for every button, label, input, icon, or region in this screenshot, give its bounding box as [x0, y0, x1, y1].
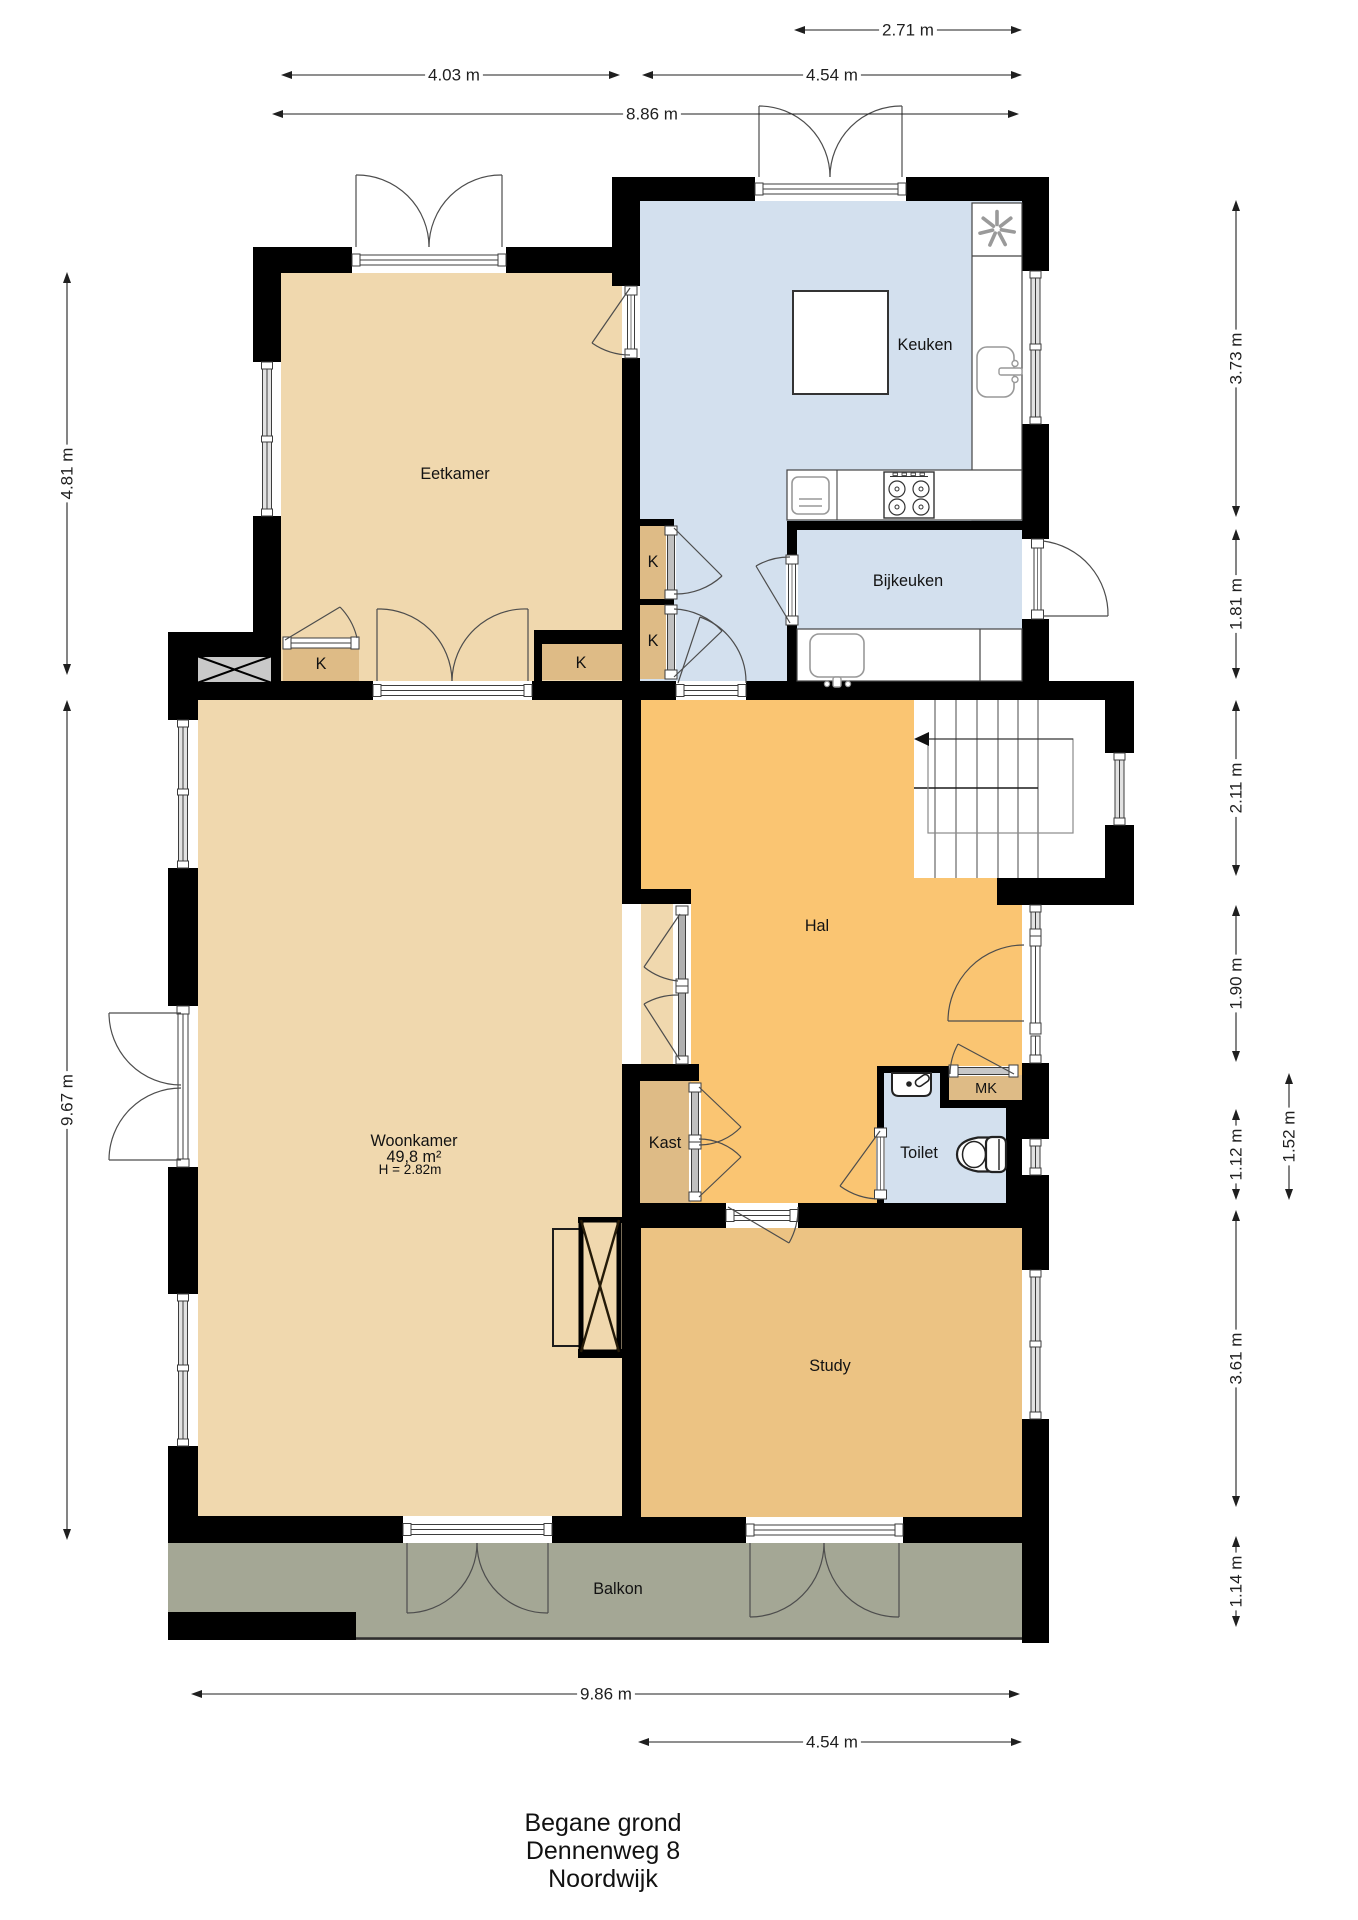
svg-text:4.54 m: 4.54 m [806, 1733, 858, 1752]
svg-text:Study: Study [809, 1357, 851, 1375]
svg-text:Noordwijk: Noordwijk [548, 1865, 658, 1893]
svg-text:MK: MK [975, 1081, 997, 1097]
svg-text:K: K [316, 655, 327, 673]
svg-text:Hal: Hal [805, 917, 829, 935]
svg-text:4.03 m: 4.03 m [428, 66, 480, 85]
svg-text:K: K [648, 553, 659, 571]
svg-text:Bijkeuken: Bijkeuken [873, 572, 943, 590]
svg-text:2.71 m: 2.71 m [882, 21, 934, 40]
svg-text:9.86 m: 9.86 m [580, 1685, 632, 1704]
svg-text:Toilet: Toilet [900, 1144, 938, 1162]
svg-text:8.86 m: 8.86 m [626, 105, 678, 124]
svg-text:1.90 m: 1.90 m [1227, 958, 1246, 1010]
svg-text:K: K [648, 632, 659, 650]
svg-text:1.81 m: 1.81 m [1227, 578, 1246, 630]
svg-text:Kast: Kast [649, 1134, 682, 1152]
svg-text:Begane grond: Begane grond [524, 1809, 681, 1837]
svg-text:1.14 m: 1.14 m [1227, 1556, 1246, 1608]
svg-text:Keuken: Keuken [898, 336, 953, 354]
svg-text:3.73 m: 3.73 m [1227, 333, 1246, 385]
svg-text:K: K [576, 654, 587, 672]
svg-text:Eetkamer: Eetkamer [420, 465, 490, 483]
svg-text:3.61 m: 3.61 m [1227, 1333, 1246, 1385]
svg-text:H = 2.82m: H = 2.82m [379, 1162, 442, 1177]
svg-text:Balkon: Balkon [593, 1580, 643, 1598]
svg-text:1.12 m: 1.12 m [1227, 1129, 1246, 1181]
svg-text:2.11 m: 2.11 m [1227, 763, 1246, 814]
svg-text:4.81 m: 4.81 m [58, 448, 77, 500]
svg-text:4.54 m: 4.54 m [806, 66, 858, 85]
svg-text:Dennenweg 8: Dennenweg 8 [526, 1837, 680, 1865]
svg-text:1.52 m: 1.52 m [1280, 1111, 1299, 1163]
svg-text:9.67 m: 9.67 m [58, 1074, 77, 1126]
